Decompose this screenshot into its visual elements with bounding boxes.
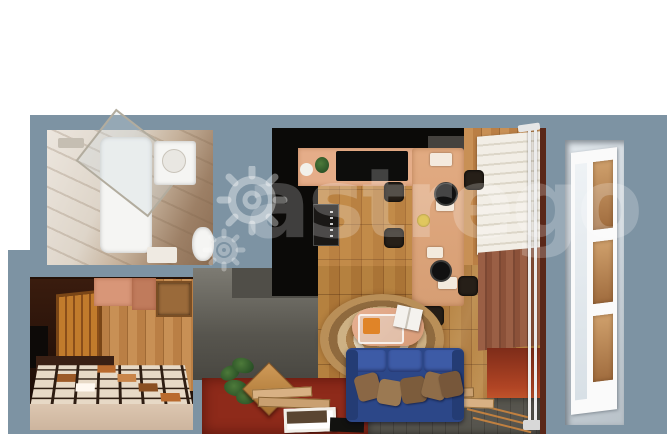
tile-cell: [75, 383, 95, 391]
baseboard-wall: [30, 404, 193, 430]
sofa-cushion: [388, 350, 422, 372]
checkered-floor: [30, 365, 193, 408]
tile-cell: [57, 374, 76, 382]
tile-cell: [117, 374, 136, 382]
photo-frame-white: [284, 407, 337, 433]
tile-cell: [97, 365, 115, 372]
apartment-render: astrego: [0, 0, 670, 434]
shower-fixture: [58, 138, 84, 148]
tile-cell: [160, 393, 181, 402]
wall-cabinet: [132, 278, 156, 310]
radiator-valve: [523, 420, 541, 430]
watermark-text: astrego: [246, 156, 640, 252]
tray-snack: [363, 318, 380, 334]
sofa: [346, 348, 464, 422]
bath-mat: [147, 247, 177, 263]
window-pane: [593, 314, 613, 382]
pan: [430, 260, 452, 282]
sink: [162, 149, 186, 173]
outer-wall-left: [8, 250, 30, 434]
wall-cabinet: [94, 278, 132, 306]
tile-cell: [138, 383, 158, 391]
stool: [458, 276, 478, 296]
glass-cabinet: [156, 281, 192, 317]
